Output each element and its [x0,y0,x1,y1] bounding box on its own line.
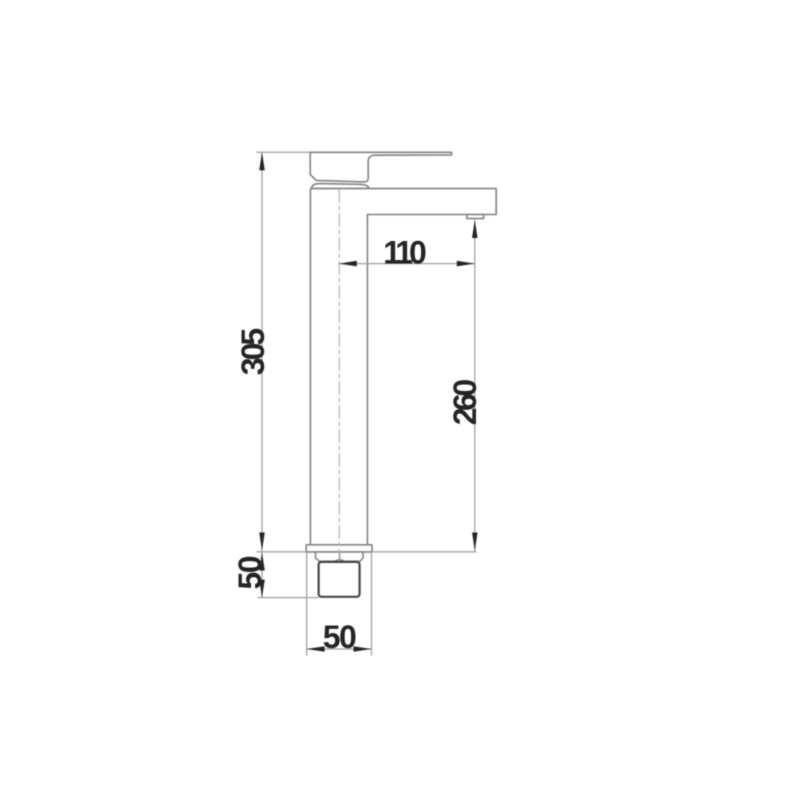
svg-text:260: 260 [447,380,483,426]
svg-text:305: 305 [235,329,271,376]
svg-text:50: 50 [232,556,268,589]
svg-text:50: 50 [323,619,356,655]
svg-text:110: 110 [383,234,426,270]
